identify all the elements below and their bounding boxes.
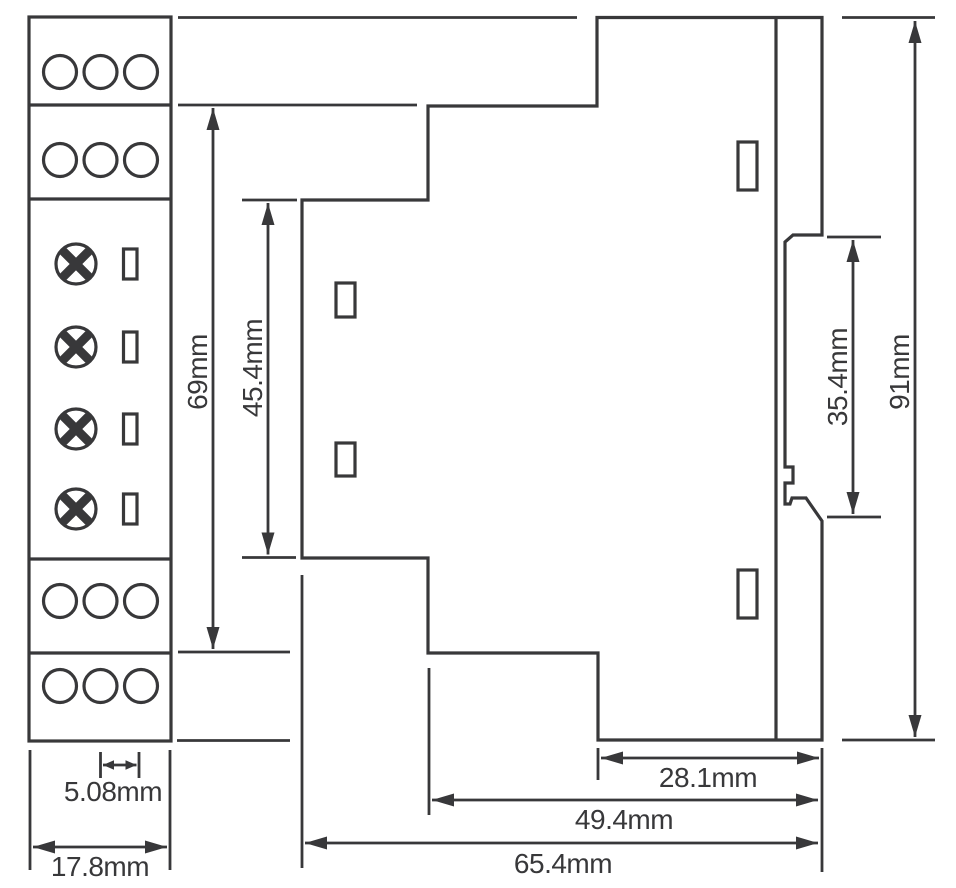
terminal-hole-icon	[125, 56, 158, 89]
clip-slot	[336, 443, 355, 476]
terminal-hole-icon	[44, 585, 77, 618]
terminal-hole-icon	[84, 670, 117, 703]
adjustment-screw-icon	[56, 244, 96, 284]
terminal-block-upper	[44, 144, 158, 177]
terminal-hole-icon	[84, 585, 117, 618]
clip-slot	[738, 142, 757, 190]
dim-label-body-depth: 49.4mm	[575, 804, 673, 835]
clip-slot	[336, 283, 355, 317]
terminal-hole-icon	[84, 56, 117, 89]
front-view-outline	[29, 17, 171, 741]
terminal-hole-icon	[44, 144, 77, 177]
drawing-page: 5.08mm 17.8mm 28.1mm 49.4mm 65.4mm 69mm …	[0, 0, 956, 888]
terminal-block-top	[44, 56, 158, 89]
indicator-window	[124, 332, 138, 362]
adjustment-screw-icon	[56, 409, 96, 449]
dim-label-module-width: 17.8mm	[51, 851, 149, 882]
dim-label-rear-depth: 28.1mm	[659, 762, 757, 793]
dim-label-overall-depth: 65.4mm	[514, 848, 612, 879]
dimension-drawing: 5.08mm 17.8mm 28.1mm 49.4mm 65.4mm 69mm …	[0, 0, 956, 888]
dim-label-front-height: 45.4mm	[237, 319, 268, 417]
terminal-hole-icon	[44, 56, 77, 89]
terminal-hole-icon	[125, 670, 158, 703]
indicator-window	[124, 494, 138, 524]
terminal-hole-icon	[125, 585, 158, 618]
terminal-hole-icon	[125, 144, 158, 177]
extension-lines	[30, 18, 935, 873]
terminal-block-lower	[44, 585, 158, 618]
dim-label-overall-height: 91mm	[884, 334, 915, 410]
adjustment-screw-icon	[56, 327, 96, 367]
front-view	[29, 17, 171, 741]
clip-slot	[738, 570, 757, 618]
indicator-window	[124, 414, 138, 444]
terminal-hole-icon	[44, 670, 77, 703]
side-profile-view	[302, 18, 822, 741]
dim-label-recess-height: 35.4mm	[822, 328, 853, 426]
indicator-window	[124, 249, 138, 279]
dim-label-terminal-pitch: 5.08mm	[64, 776, 162, 807]
dimension-lines	[33, 21, 915, 847]
terminal-hole-icon	[84, 144, 117, 177]
terminal-block-bottom	[44, 670, 158, 703]
adjustment-screw-icon	[56, 489, 96, 529]
dim-label-step-height: 69mm	[182, 334, 213, 410]
side-profile-outline	[302, 18, 822, 741]
